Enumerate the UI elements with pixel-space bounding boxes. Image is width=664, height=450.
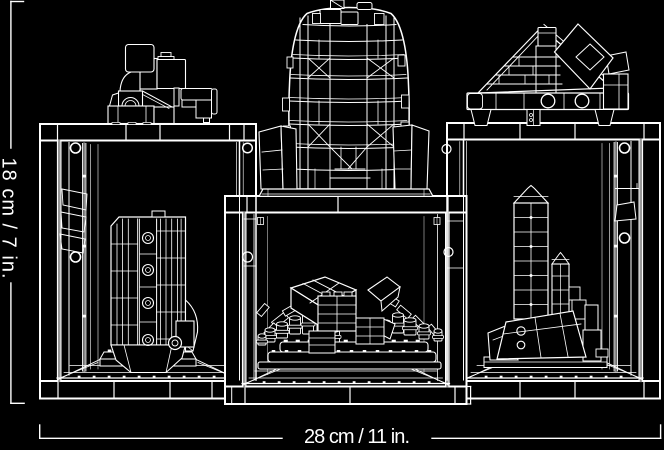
svg-text:28 cm / 11 in.: 28 cm / 11 in. xyxy=(304,426,410,448)
svg-text:18 cm / 7 in.: 18 cm / 7 in. xyxy=(0,158,20,279)
